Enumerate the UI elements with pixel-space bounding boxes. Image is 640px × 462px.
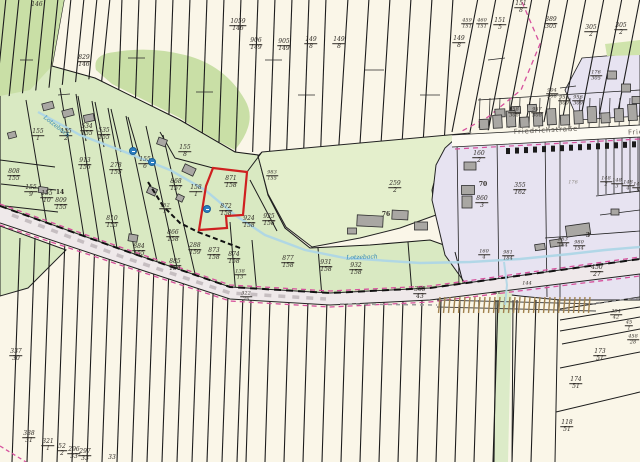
map-viewport[interactable]: 8291461059146906149905149149814981498459… <box>0 0 640 462</box>
cadastral-map-canvas <box>0 0 640 462</box>
